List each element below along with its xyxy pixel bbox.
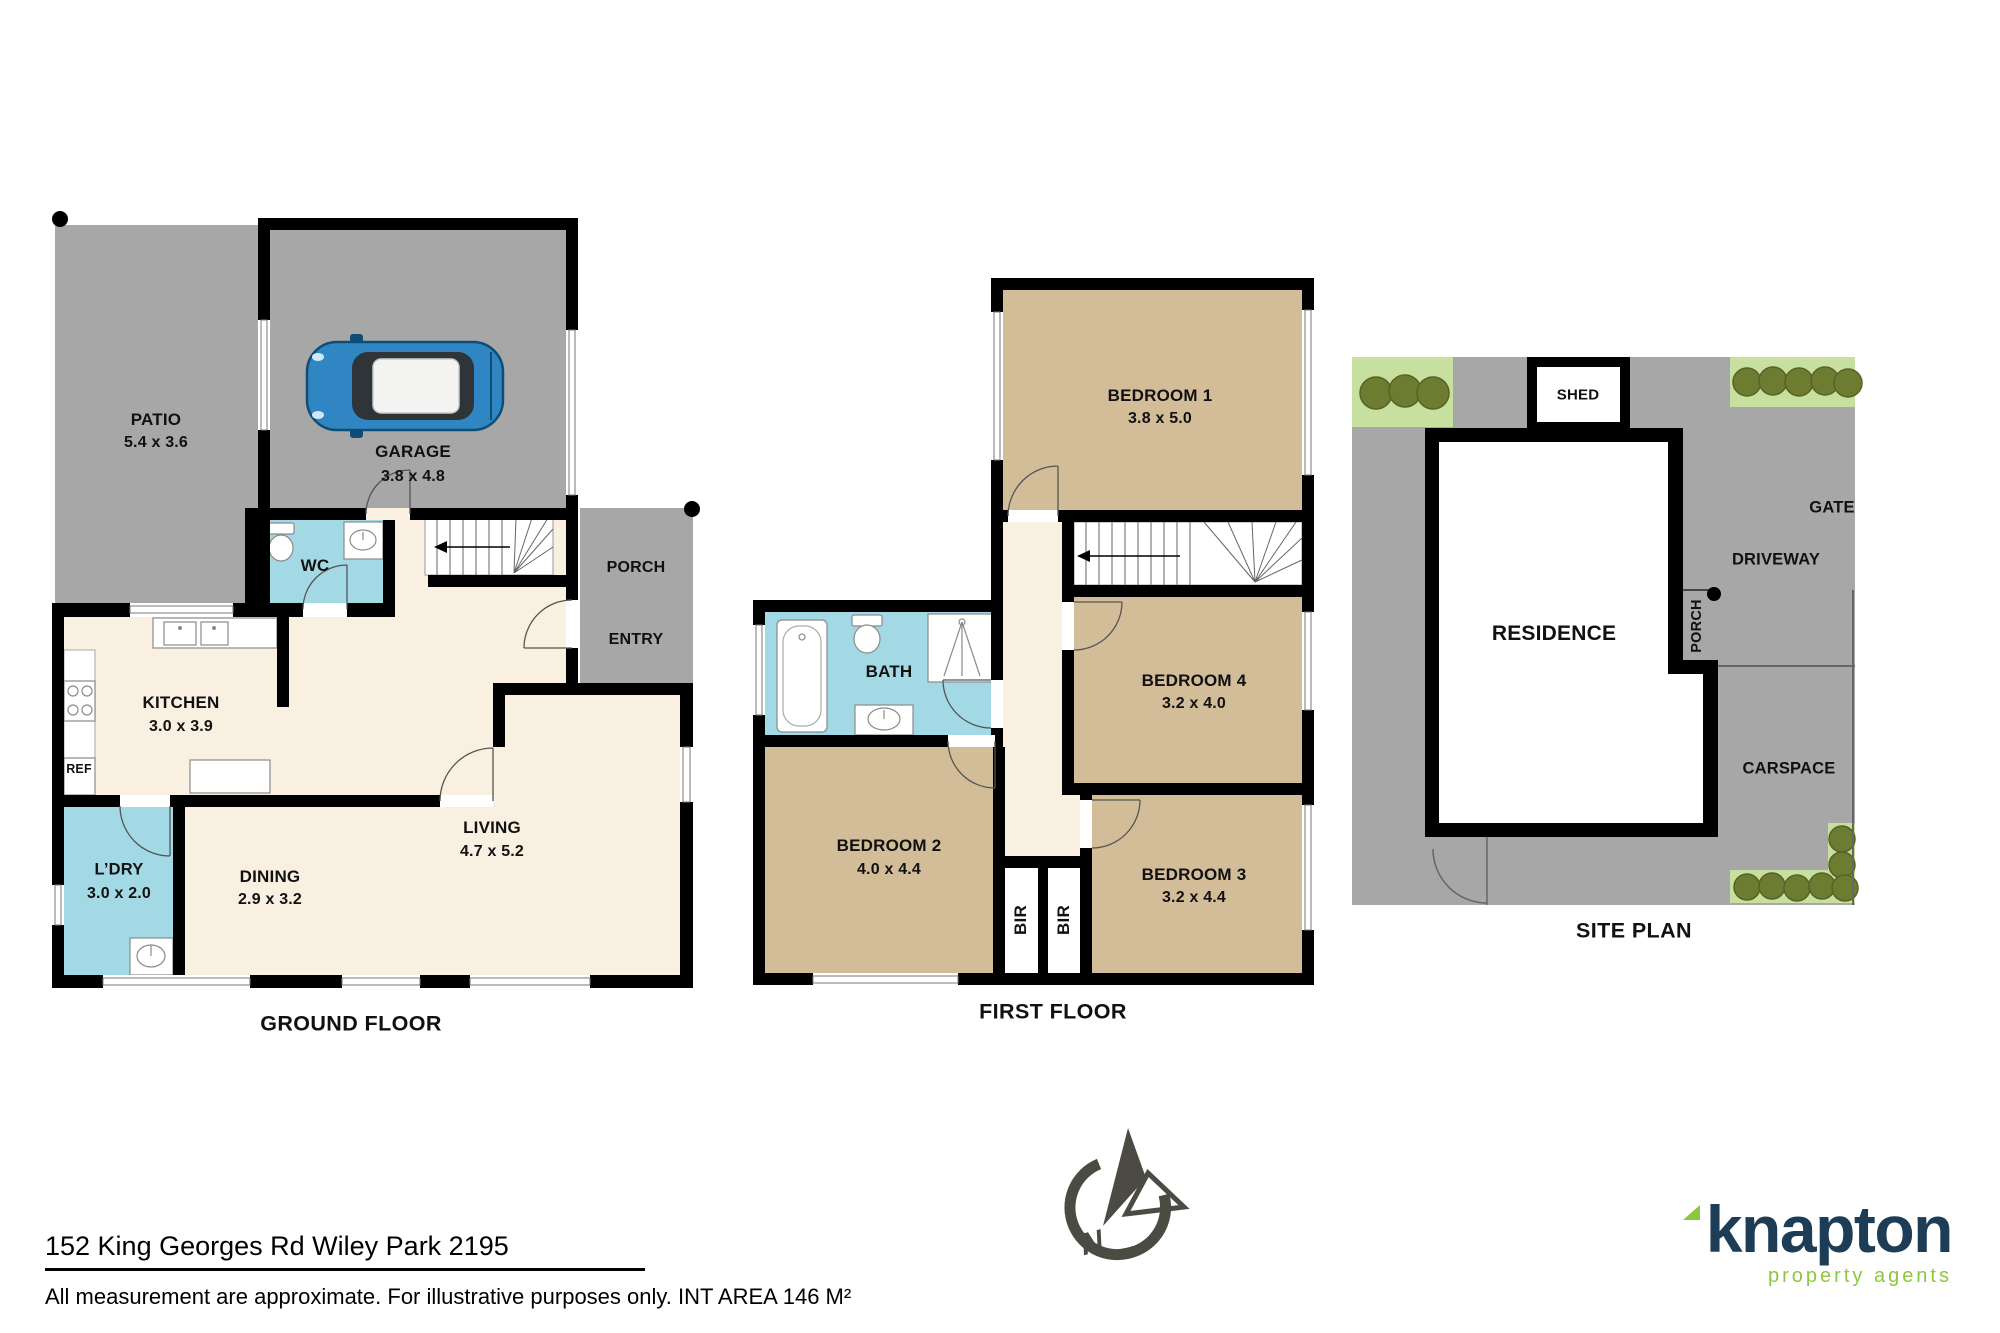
disclaimer-text: All measurement are approximate. For ill… [45,1284,851,1310]
corner-dot [1707,587,1721,601]
label-bir2: BIR [1054,905,1074,935]
label-kitchen: KITCHEN [143,693,220,713]
label-bedroom2: BEDROOM 2 [837,836,942,856]
label-bedroom3-dims: 3.2 x 4.4 [1162,889,1226,907]
corner-dot [684,501,700,517]
label-carspace: CARSPACE [1743,760,1836,779]
label-shed: SHED [1557,387,1599,404]
ground-floor-title: GROUND FLOOR [260,1012,442,1037]
footer-divider [45,1268,645,1271]
label-bedroom2-dims: 4.0 x 4.4 [857,861,921,879]
label-bedroom3: BEDROOM 3 [1142,865,1247,885]
label-bir1: BIR [1011,905,1031,935]
label-entry: ENTRY [609,631,664,649]
label-garage-dims: 3.8 x 4.8 [381,468,445,486]
label-garage: GARAGE [375,442,451,462]
logo-wedge-icon [1683,1205,1701,1221]
hallway-area [1003,522,1062,858]
label-bedroom1: BEDROOM 1 [1108,386,1213,406]
property-address: 152 King Georges Rd Wiley Park 2195 [45,1231,509,1262]
site-plan-title: SITE PLAN [1576,919,1692,944]
logo-wordmark: knapton [1706,1196,1952,1262]
logo-tagline: property agents [1706,1266,1952,1286]
wc-toilet-icon [268,523,294,534]
first-floor-title: FIRST FLOOR [979,1000,1127,1025]
bathtub-icon [777,620,827,732]
toilet-icon [852,615,882,626]
label-patio: PATIO [131,410,181,430]
label-bedroom1-dims: 3.8 x 5.0 [1128,410,1192,428]
label-porch: PORCH [607,559,666,577]
floorplan-graphics [0,0,2000,1333]
kitchen-island [190,760,270,793]
label-ref: REF [66,762,92,776]
built-in-robes [993,856,1092,975]
label-dining-dims: 2.9 x 3.2 [238,891,302,909]
label-living: LIVING [463,818,521,838]
bedroom2-area [765,747,993,973]
label-dining: DINING [240,867,301,887]
label-laundry-dims: 3.0 x 2.0 [87,885,151,903]
label-driveway: DRIVEWAY [1732,551,1820,570]
staircase-first [1074,522,1302,585]
label-bath: BATH [866,662,913,682]
label-kitchen-dims: 3.0 x 3.9 [149,718,213,736]
label-wc: WC [301,556,330,576]
floorplan-page: PATIO 5.4 x 3.6 GARAGE 3.8 x 4.8 WC PORC… [0,0,2000,1333]
label-site-porch: PORCH [1689,599,1705,652]
agency-logo: knapton property agents [1706,1196,1952,1286]
staircase-ground [425,518,553,575]
ground-floor-plan [52,211,700,988]
label-bedroom4-dims: 3.2 x 4.0 [1162,695,1226,713]
label-residence: RESIDENCE [1492,622,1616,646]
label-bedroom4: BEDROOM 4 [1142,671,1247,691]
porch-area [580,508,693,683]
label-gate: GATE [1809,499,1854,518]
label-laundry: L’DRY [95,861,144,880]
label-patio-dims: 5.4 x 3.6 [124,434,188,452]
label-living-dims: 4.7 x 5.2 [460,843,524,861]
corner-dot [52,211,68,227]
car-top-view-icon [307,334,503,438]
